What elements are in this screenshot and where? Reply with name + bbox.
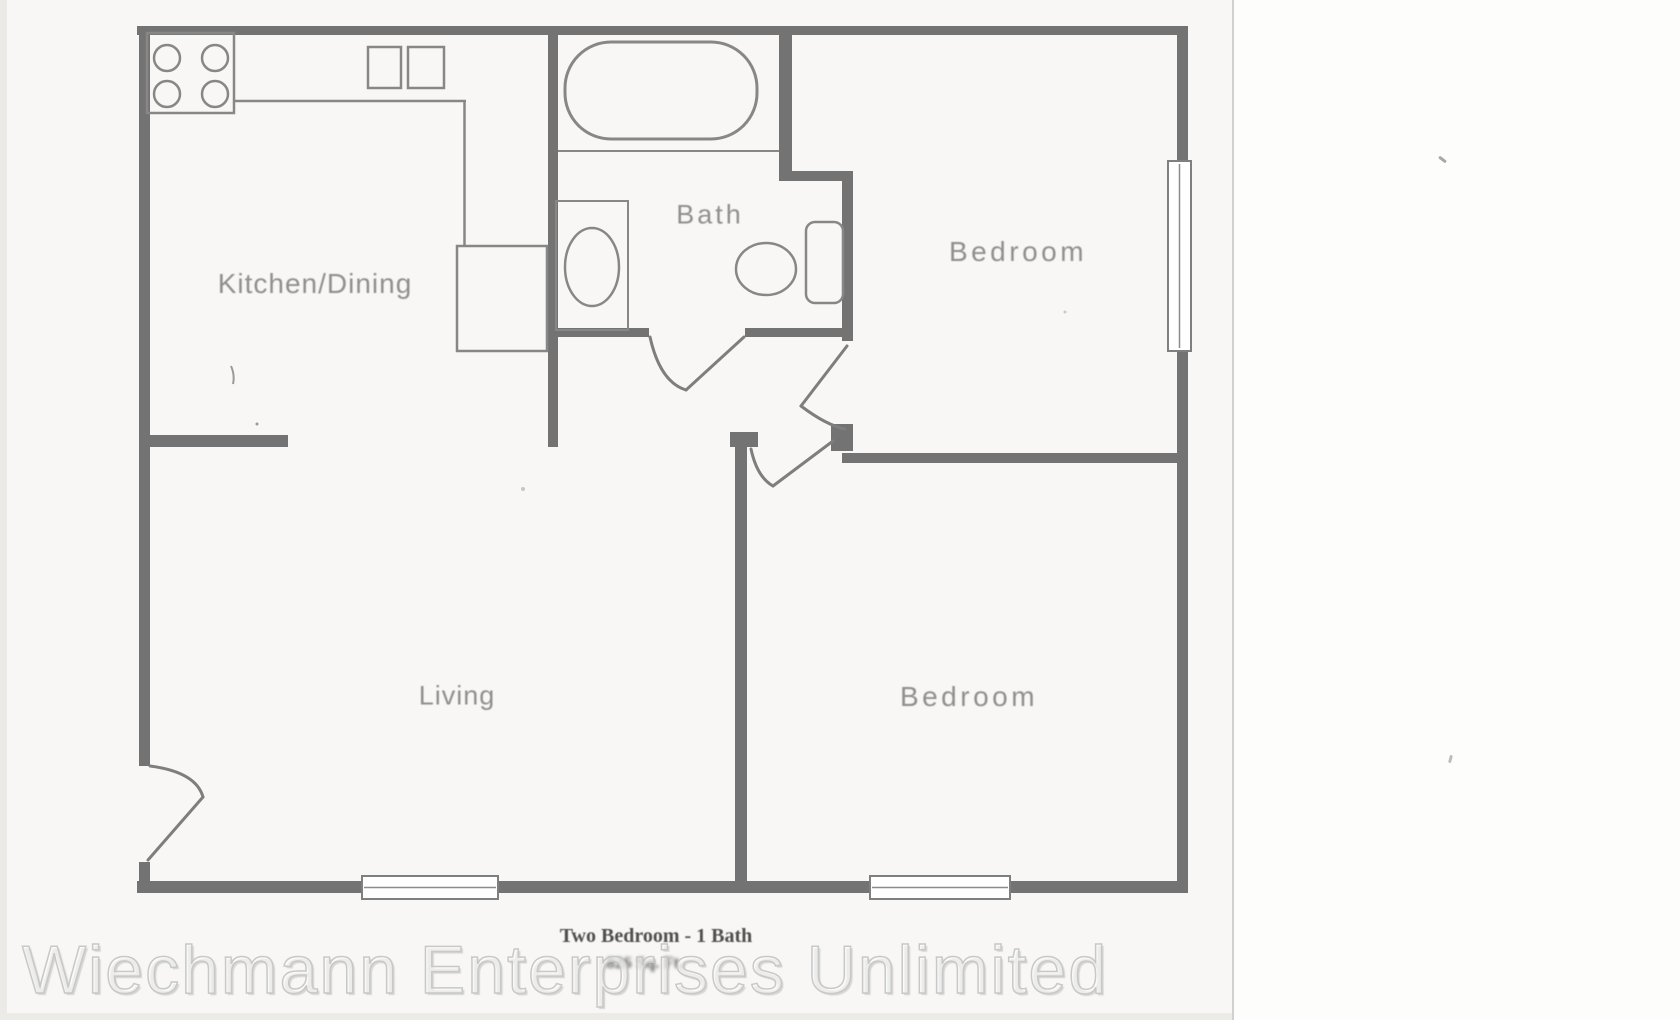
- entry-door-leaf: [148, 797, 203, 860]
- wall-bedroom2-left-cap: [730, 432, 758, 447]
- room-label-bedroom-bottom: Bedroom: [900, 681, 1038, 713]
- room-label-bedroom-top: Bedroom: [949, 236, 1087, 268]
- wall-outer-right: [1177, 26, 1188, 893]
- right-margin-panel: [1232, 0, 1680, 1020]
- stove-burner-3: [154, 81, 180, 107]
- wall-living-half: [150, 435, 288, 447]
- bedroom2-door-leaf: [773, 441, 833, 486]
- scan-speck-dot-2: [521, 487, 525, 491]
- entry-door-swing-arc: [150, 766, 203, 797]
- room-label-kitchen-dining: Kitchen/Dining: [218, 268, 413, 300]
- bath-door-swing-arc: [650, 337, 686, 390]
- bathtub: [565, 42, 757, 139]
- scan-speck-right-2: [1448, 755, 1453, 764]
- wall-bedroom2-left: [735, 440, 747, 882]
- refrigerator: [457, 246, 547, 351]
- counter-edge-line: [234, 101, 466, 247]
- scan-speck-apostrophe: [231, 366, 234, 384]
- room-label-bath: Bath: [676, 200, 744, 231]
- vanity: [556, 201, 628, 330]
- stove-burner-4: [202, 81, 228, 107]
- floor-plan-page: Kitchen/Dining Bath Bedroom Living Bedro…: [0, 0, 1680, 1020]
- wall-bedroom-divider: [842, 453, 1177, 463]
- floor-plan-drawing: [0, 0, 1232, 1020]
- kitchen-sink-left-basin: [368, 47, 401, 88]
- scan-speck-dot-1: [256, 423, 259, 426]
- kitchen-sink-right-basin: [408, 47, 444, 88]
- room-label-living: Living: [419, 681, 496, 712]
- scan-speck-dot-3: [1064, 311, 1067, 314]
- bedroom1-door-leaf: [801, 346, 847, 406]
- vanity-sink: [565, 228, 619, 306]
- stove-burner-1: [154, 45, 180, 71]
- wall-bath-right-upper: [779, 33, 792, 179]
- stove-burner-2: [202, 45, 228, 71]
- wall-bath-bottom-right: [745, 328, 843, 337]
- wall-outer-left-upper: [139, 26, 150, 766]
- toilet-tank: [806, 222, 843, 303]
- wall-outer-bottom: [137, 881, 1188, 893]
- scan-speck-right-1: [1438, 156, 1447, 164]
- watermark-text: Wiechmann Enterprises Unlimited: [22, 931, 1108, 1009]
- stove: [147, 33, 234, 113]
- bath-door-leaf: [686, 337, 744, 390]
- wall-outer-top: [137, 26, 1188, 35]
- wall-bath-jog: [779, 171, 852, 181]
- bedroom2-door-swing-arc: [751, 449, 773, 486]
- toilet-bowl: [736, 243, 796, 295]
